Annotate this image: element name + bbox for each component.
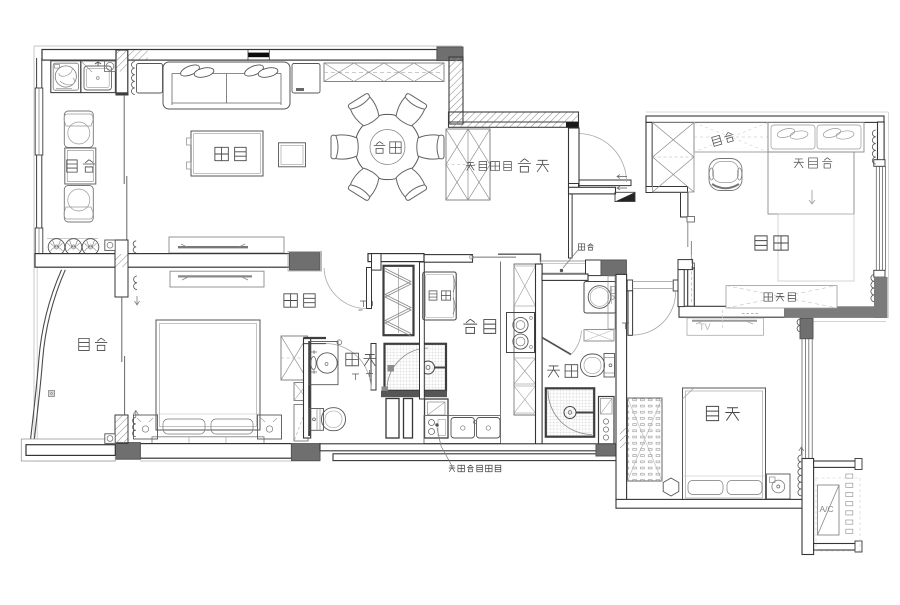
svg-text:TV: TV (699, 322, 711, 332)
svg-text:A/C: A/C (820, 504, 834, 514)
